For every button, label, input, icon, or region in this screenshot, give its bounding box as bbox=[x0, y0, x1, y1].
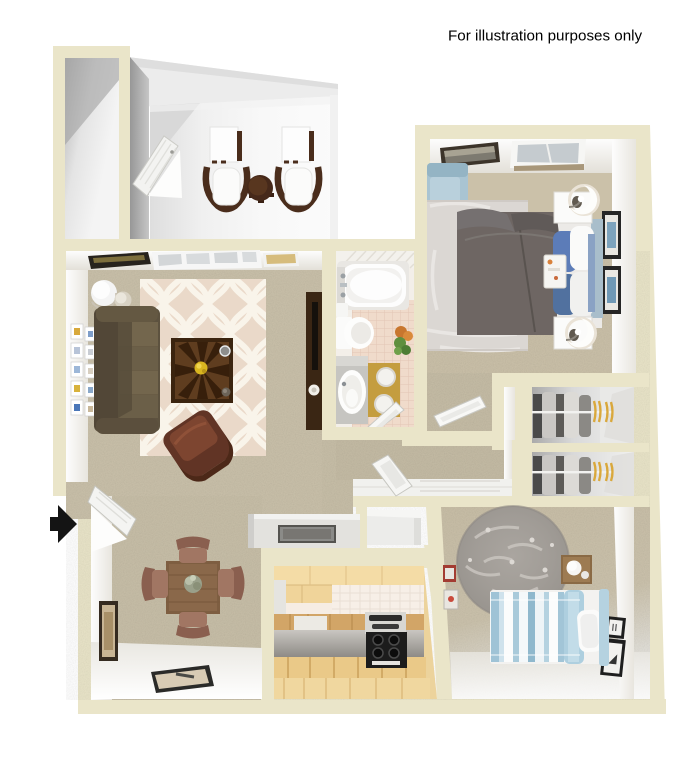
svg-text:For illustration purposes only: For illustration purposes only bbox=[448, 28, 643, 45]
